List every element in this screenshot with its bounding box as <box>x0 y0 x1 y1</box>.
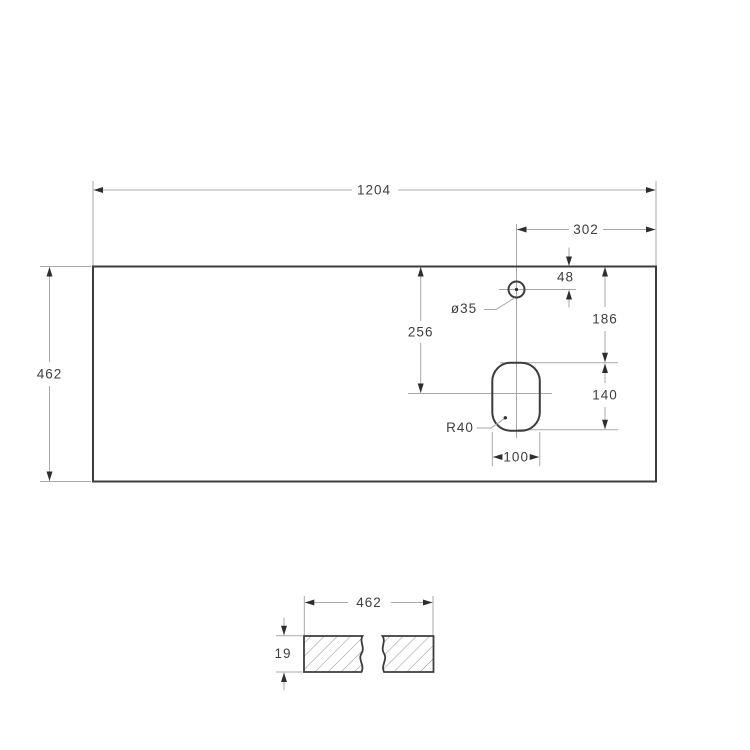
dim-edge-to-drain: 186 <box>592 267 618 362</box>
dim-faucet-offset-right: 302 <box>517 222 655 237</box>
dim-overall-width-value: 1204 <box>357 183 391 198</box>
dim-edge-to-drain-value: 186 <box>592 312 618 327</box>
top-view: 1204 302 48 ø35 256 186 <box>37 181 656 482</box>
section-slab-left <box>304 636 363 672</box>
faucet-diameter-value: ø35 <box>451 301 477 316</box>
dim-faucet-offset-edge-value: 48 <box>557 270 574 285</box>
dim-faucet-offset-right-value: 302 <box>573 222 599 237</box>
dim-overall-depth: 462 <box>37 267 63 480</box>
dim-drain-length-value: 140 <box>592 388 618 403</box>
leader-line <box>477 418 506 428</box>
dim-section-depth-value: 462 <box>356 595 382 610</box>
dim-drain-width: 100 <box>493 450 539 465</box>
countertop-drawing: 1204 302 48 ø35 256 186 <box>0 0 750 750</box>
dim-faucet-offset-edge: 48 <box>557 248 574 308</box>
leader-line <box>484 298 515 310</box>
countertop-outline <box>93 267 656 482</box>
faucet-hole-center-dot <box>515 288 518 291</box>
dim-drain-center-depth: 256 <box>408 267 434 392</box>
technical-drawing-canvas: 1204 302 48 ø35 256 186 <box>0 0 750 750</box>
dim-overall-depth-value: 462 <box>37 367 63 382</box>
dim-section-depth: 462 <box>305 595 432 610</box>
dim-drain-center-depth-value: 256 <box>408 325 434 340</box>
dim-drain-width-value: 100 <box>503 450 529 465</box>
leader-dot <box>504 416 507 419</box>
dim-drain-length: 140 <box>592 364 618 429</box>
section-slab-right <box>383 636 434 672</box>
dim-overall-width: 1204 <box>94 183 655 198</box>
drain-radius-value: R40 <box>446 420 474 435</box>
label-faucet-diameter: ø35 <box>451 298 515 316</box>
dim-thickness: 19 <box>274 618 291 691</box>
section-view: 462 19 <box>274 595 433 690</box>
dim-thickness-value: 19 <box>274 646 291 661</box>
